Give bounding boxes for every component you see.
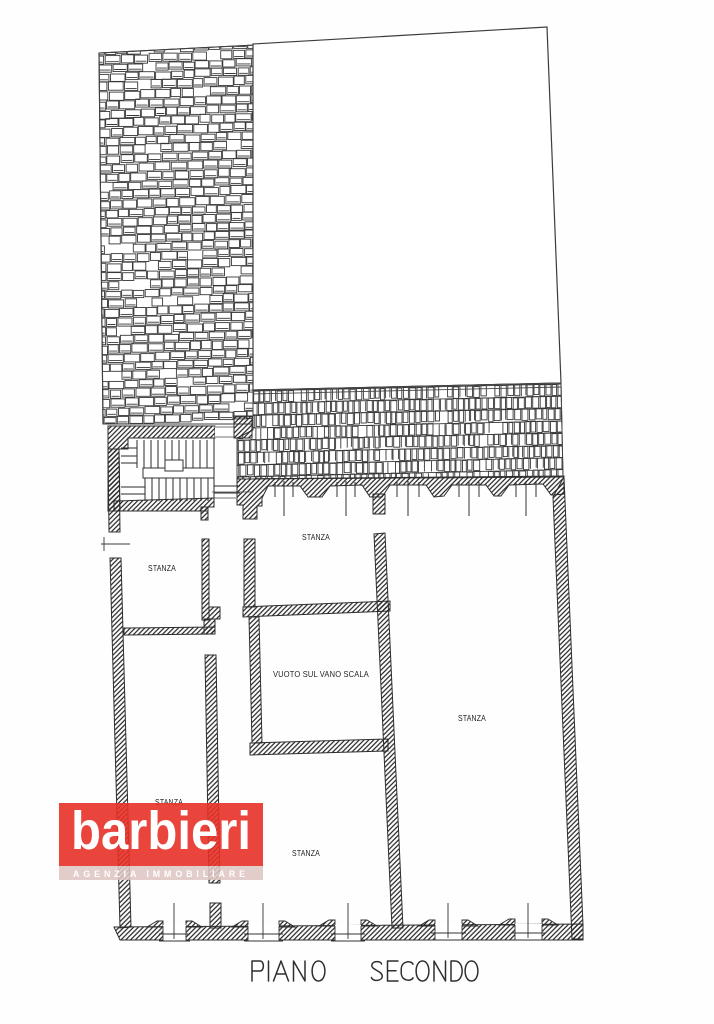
svg-text:STANZA: STANZA bbox=[458, 714, 486, 723]
svg-text:STANZA: STANZA bbox=[148, 564, 176, 573]
svg-text:VUOTO SUL VANO SCALA: VUOTO SUL VANO SCALA bbox=[273, 669, 369, 679]
svg-text:AGENZIA IMMOBILIARE: AGENZIA IMMOBILIARE bbox=[73, 869, 249, 879]
svg-text:STANZA: STANZA bbox=[302, 533, 330, 542]
svg-text:STANZA: STANZA bbox=[292, 849, 320, 858]
svg-text:barbieri: barbieri bbox=[71, 801, 251, 861]
